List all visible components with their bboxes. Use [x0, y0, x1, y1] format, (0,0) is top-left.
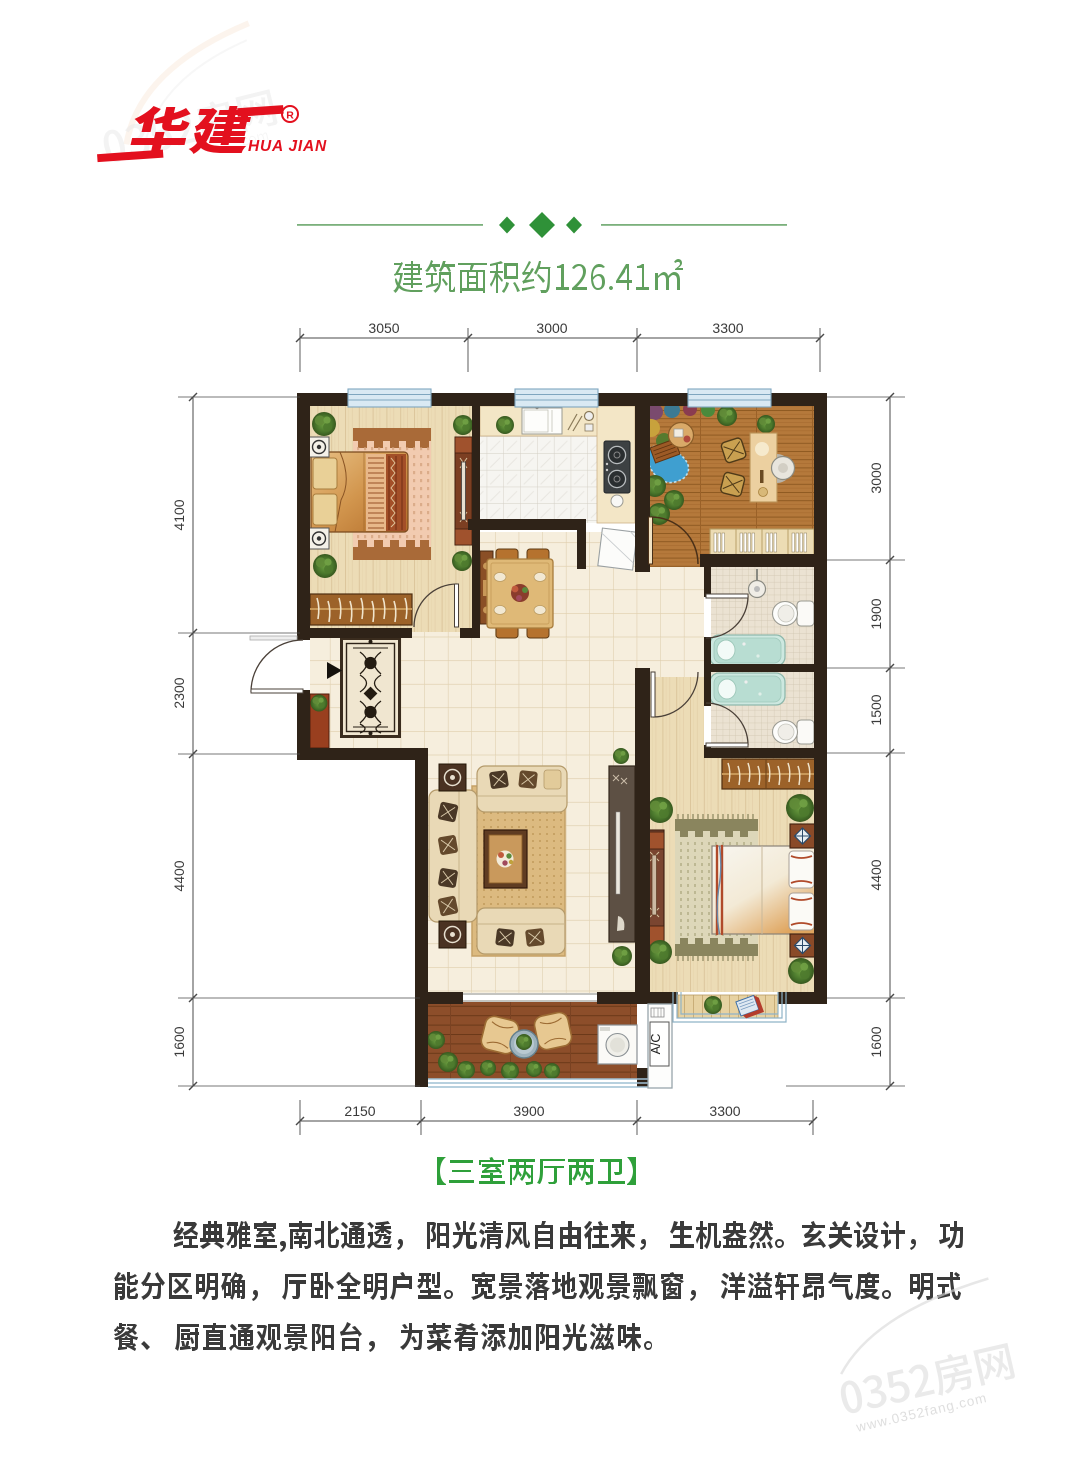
svg-text:1500: 1500: [868, 694, 884, 725]
svg-text:3050: 3050: [368, 320, 399, 336]
svg-text:4100: 4100: [171, 499, 187, 530]
svg-text:R: R: [286, 110, 294, 122]
svg-text:3000: 3000: [536, 320, 567, 336]
svg-text:3900: 3900: [513, 1103, 544, 1119]
svg-text:3000: 3000: [868, 462, 884, 493]
svg-text:4400: 4400: [868, 859, 884, 890]
svg-text:3300: 3300: [712, 320, 743, 336]
svg-text:2150: 2150: [344, 1103, 375, 1119]
svg-text:HUA JIAN: HUA JIAN: [248, 138, 327, 155]
svg-text:A/C: A/C: [649, 1034, 663, 1055]
svg-text:3300: 3300: [709, 1103, 740, 1119]
svg-text:2300: 2300: [171, 677, 187, 708]
svg-text:1600: 1600: [171, 1026, 187, 1057]
svg-text:4400: 4400: [171, 860, 187, 891]
svg-text:1900: 1900: [868, 598, 884, 629]
svg-text:1600: 1600: [868, 1026, 884, 1057]
